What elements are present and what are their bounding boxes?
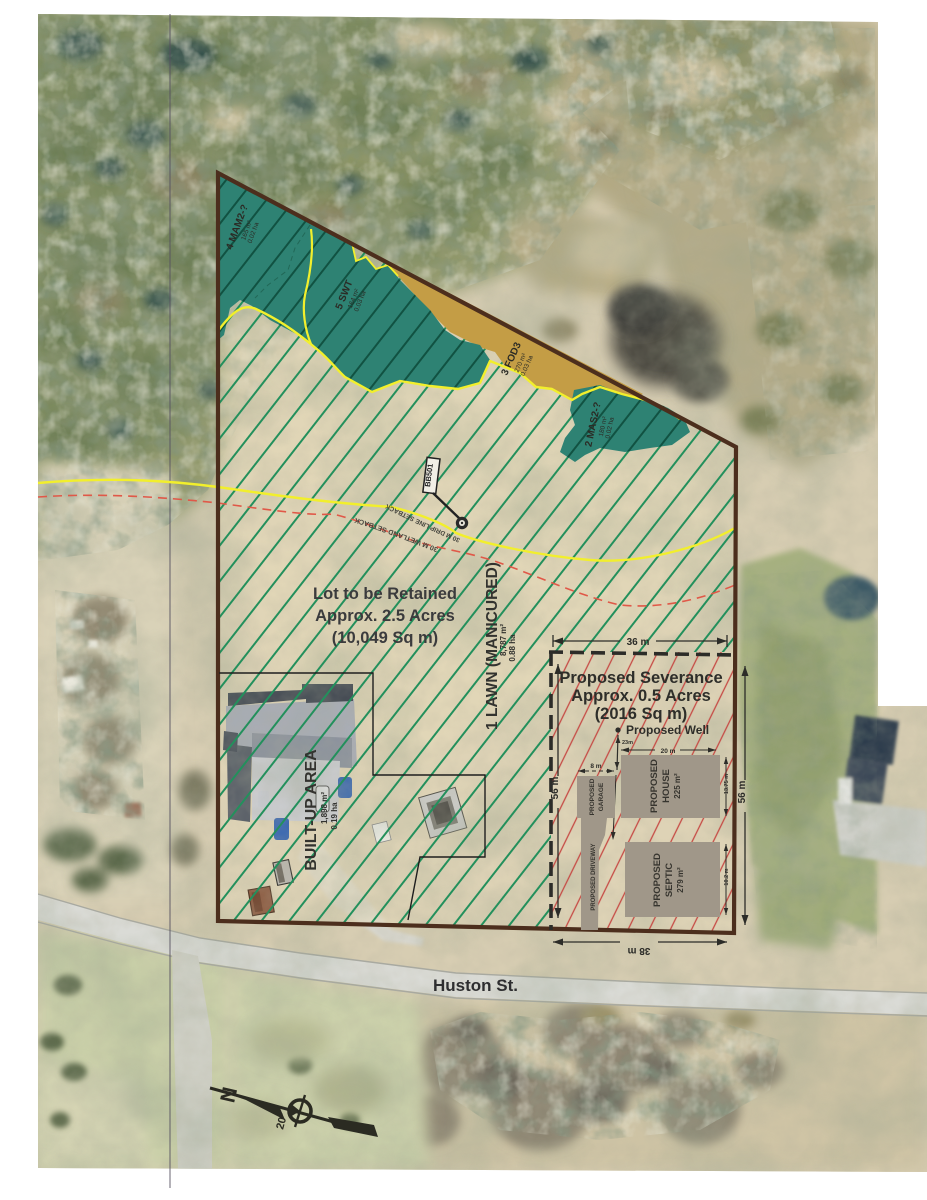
- svg-text:56 m: 56 m: [550, 776, 561, 799]
- svg-text:Approx. 2.5 Acres: Approx. 2.5 Acres: [315, 607, 455, 625]
- svg-text:Proposed Well: Proposed Well: [626, 723, 709, 737]
- svg-text:(10,049 Sq m): (10,049 Sq m): [332, 629, 438, 647]
- svg-text:279 m²: 279 m²: [676, 867, 685, 893]
- svg-text:20 m: 20 m: [661, 748, 676, 755]
- svg-text:23m: 23m: [622, 740, 633, 746]
- svg-text:Huston St.: Huston St.: [433, 976, 518, 995]
- svg-text:36 m: 36 m: [627, 637, 650, 648]
- svg-text:Proposed Severance: Proposed Severance: [559, 669, 722, 687]
- svg-text:HOUSE: HOUSE: [661, 769, 672, 803]
- svg-text:8,787 m²: 8,787 m²: [499, 624, 508, 656]
- svg-text:1,898 m²: 1,898 m²: [320, 792, 329, 824]
- svg-text:BUILT-UP AREA: BUILT-UP AREA: [303, 749, 320, 871]
- svg-text:0.19 ha: 0.19 ha: [330, 802, 339, 830]
- svg-text:Lot to be Retained: Lot to be Retained: [313, 585, 457, 603]
- svg-text:PROPOSED: PROPOSED: [649, 759, 660, 813]
- svg-text:56 m: 56 m: [737, 780, 748, 803]
- svg-text:SEPTIC: SEPTIC: [664, 863, 675, 897]
- svg-text:PROPOSED DRIVEWAY: PROPOSED DRIVEWAY: [591, 843, 597, 910]
- svg-text:13.75 m: 13.75 m: [724, 774, 730, 794]
- svg-text:10.2 m: 10.2 m: [724, 868, 730, 885]
- svg-text:(2016 Sq m): (2016 Sq m): [595, 705, 688, 723]
- svg-text:Approx. 0.5 Acres: Approx. 0.5 Acres: [571, 687, 711, 705]
- svg-text:0.88 ha: 0.88 ha: [508, 634, 517, 662]
- svg-text:8 m: 8 m: [590, 763, 601, 770]
- svg-text:PROPOSED: PROPOSED: [652, 853, 663, 907]
- svg-text:PROPOSED: PROPOSED: [589, 778, 596, 815]
- svg-text:38 m: 38 m: [627, 945, 650, 956]
- svg-text:GARAGE: GARAGE: [598, 782, 605, 811]
- svg-text:225 m²: 225 m²: [673, 773, 682, 799]
